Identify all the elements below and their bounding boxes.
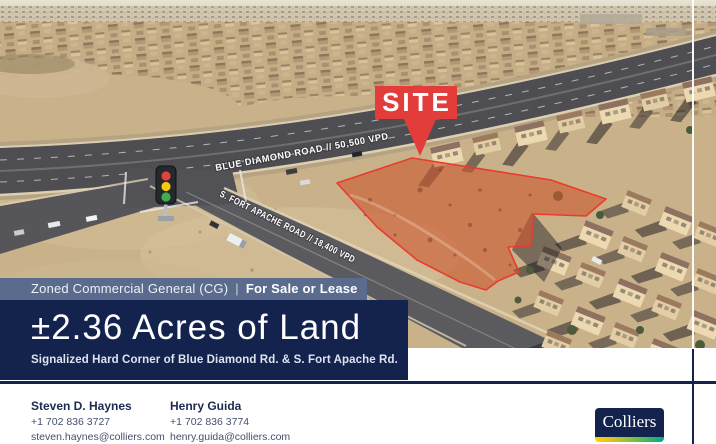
colliers-wordmark: Colliers xyxy=(595,408,664,437)
agent-phone: +1 702 836 3774 xyxy=(170,416,290,428)
agent-phone: +1 702 836 3727 xyxy=(31,416,165,428)
zoning-bar: Zoned Commercial General (CG)|For Sale o… xyxy=(0,278,367,300)
agent-email: steven.haynes@colliers.com xyxy=(31,431,165,443)
headline: ±2.36 Acres of Land xyxy=(31,310,408,347)
footer-horizontal-rule xyxy=(0,381,716,384)
agent-name: Henry Guida xyxy=(170,399,290,413)
colliers-gradient-bar xyxy=(595,437,664,442)
colliers-logo: Colliers xyxy=(595,408,664,442)
zoning-text: Zoned Commercial General (CG) xyxy=(31,281,228,296)
sale-lease-text: For Sale or Lease xyxy=(246,281,358,296)
flyer-poster: BLUE DIAMOND ROAD // 50,500 VPD S. FORT … xyxy=(0,0,716,444)
agent-name: Steven D. Haynes xyxy=(31,399,165,413)
headline-banner: ±2.36 Acres of Land Signalized Hard Corn… xyxy=(0,300,408,380)
agent-email: henry.guida@colliers.com xyxy=(170,431,290,443)
zoning-separator: | xyxy=(235,281,239,296)
agent-contact-2: Henry Guida +1 702 836 3774 henry.guida@… xyxy=(170,399,290,443)
site-label: SITE xyxy=(382,87,452,117)
frame-vertical-line xyxy=(692,0,694,348)
footer-vertical-rule xyxy=(692,349,694,444)
subheadline: Signalized Hard Corner of Blue Diamond R… xyxy=(31,354,408,366)
agent-contact-1: Steven D. Haynes +1 702 836 3727 steven.… xyxy=(31,399,165,443)
